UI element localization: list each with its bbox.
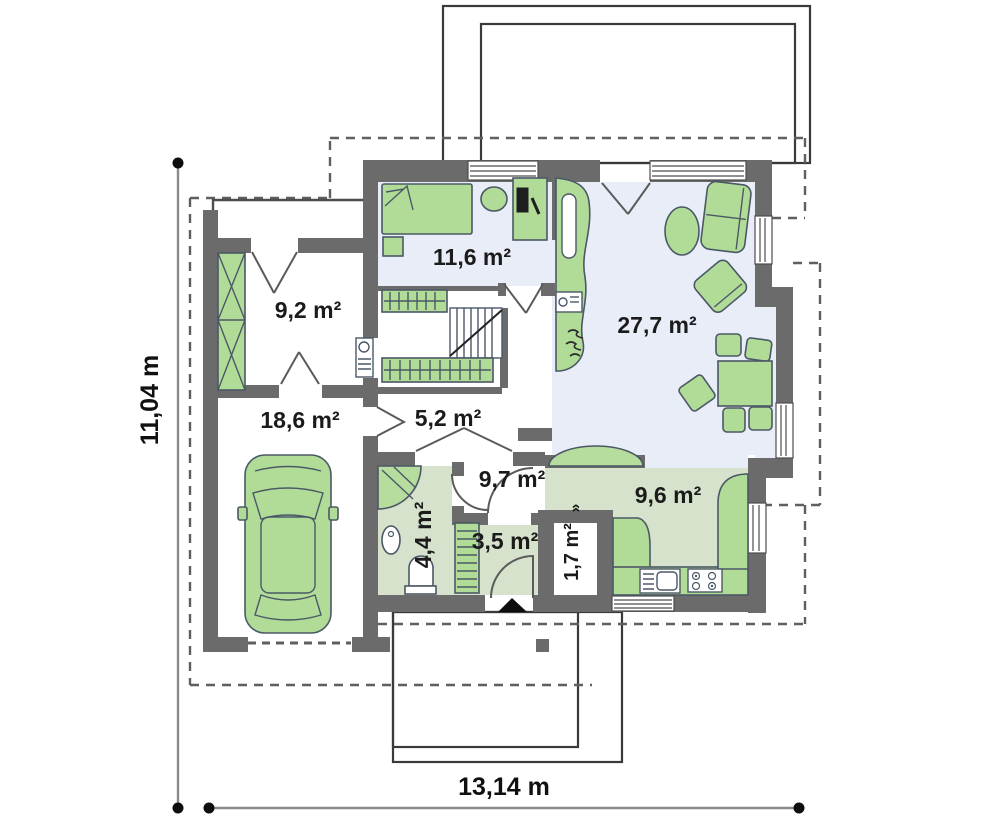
stove-icon xyxy=(556,292,582,312)
desk xyxy=(513,178,547,240)
dining-chair xyxy=(716,334,741,356)
living-window-right xyxy=(755,216,772,264)
terrace-outline xyxy=(443,6,810,163)
car xyxy=(238,455,338,633)
pantry-door-marker: » xyxy=(567,503,584,512)
dimension-left: 11,04 m xyxy=(136,158,184,814)
room-label-bathroom: 4,4 m² xyxy=(410,501,436,568)
coffee-table xyxy=(665,207,699,255)
bed xyxy=(382,184,472,234)
room-label-living: 27,7 m² xyxy=(617,312,697,338)
floor-plan-canvas: 11,04 m 13,14 m 9,2 m² 11,6 m² 27,7 m² 1… xyxy=(0,0,1000,822)
porch-pillar xyxy=(536,639,549,652)
room-label-hall: 5,2 m² xyxy=(415,405,482,431)
width-dimension-label: 13,14 m xyxy=(458,773,550,801)
living-window-top xyxy=(650,161,746,180)
dining-table xyxy=(718,361,772,406)
room-label-corridor: 9,7 m² xyxy=(479,466,546,492)
washbasin xyxy=(382,526,400,554)
height-dimension-label: 11,04 m xyxy=(136,355,164,445)
room-label-kitchen: 9,6 m² xyxy=(635,482,702,508)
dining-chair xyxy=(723,408,745,432)
bedside-table xyxy=(383,237,403,256)
floor-plan-drawing: 11,04 m 13,14 m 9,2 m² 11,6 m² 27,7 m² 1… xyxy=(0,0,1000,822)
kitchen-window-bottom xyxy=(612,596,674,611)
boiler xyxy=(356,338,373,377)
room-label-wardrobe: 9,2 m² xyxy=(275,297,342,323)
desk-chair xyxy=(481,187,507,211)
staircase xyxy=(450,308,502,358)
dining-bay-window xyxy=(776,403,793,458)
bedroom-closet xyxy=(382,290,447,312)
stove-cooktop xyxy=(688,569,722,592)
room-label-bedroom: 11,6 m² xyxy=(433,244,511,270)
dimension-bottom: 13,14 m xyxy=(204,773,805,814)
kitchen-window-right xyxy=(748,503,766,553)
sofa xyxy=(700,181,752,254)
dining-chair xyxy=(749,407,772,430)
room-label-entry: 3,5 m² xyxy=(472,528,539,554)
room-label-pantry: 1,7 m² xyxy=(561,523,583,581)
dining-chair xyxy=(745,337,773,361)
bedroom-window xyxy=(468,161,538,180)
hall-closet xyxy=(382,358,493,382)
wardrobe-cabinet xyxy=(218,253,245,390)
room-label-garage: 18,6 m² xyxy=(260,407,340,433)
kitchen-sink xyxy=(640,569,680,593)
